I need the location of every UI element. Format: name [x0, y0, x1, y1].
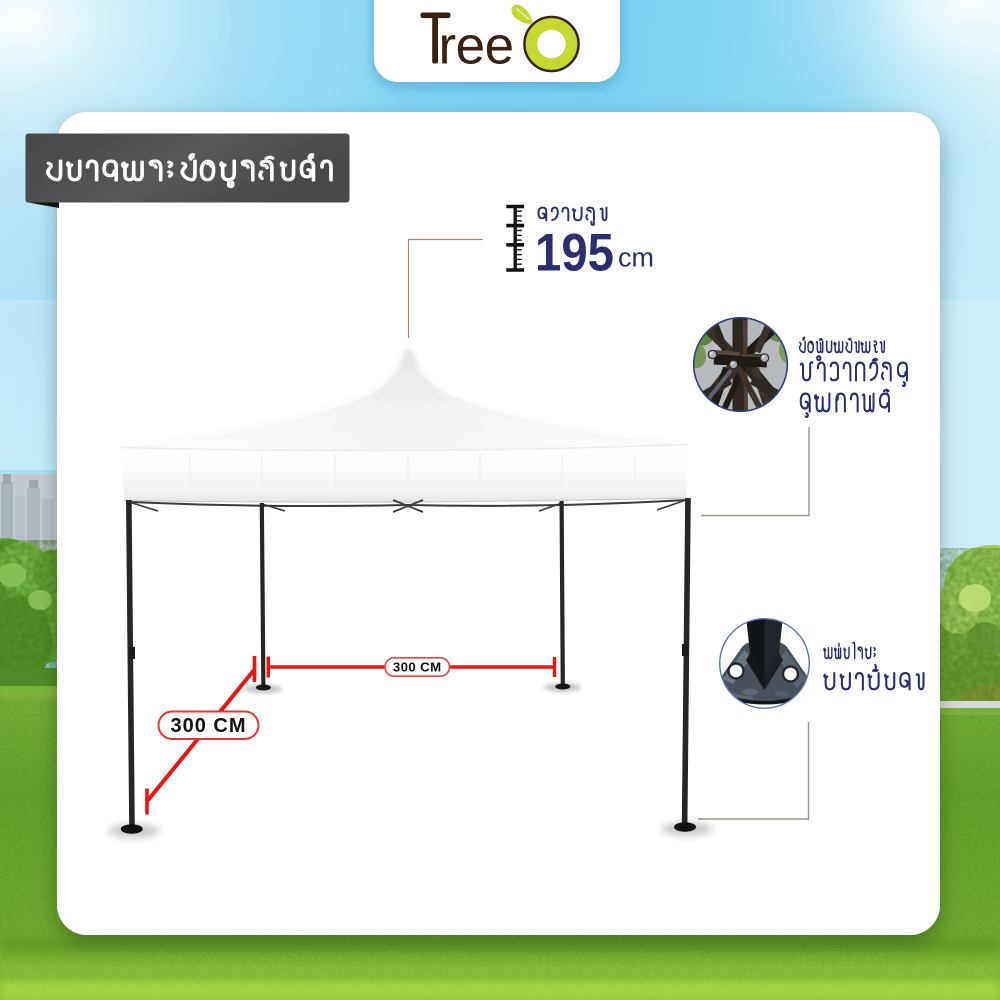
svg-text:195: 195	[535, 224, 614, 283]
svg-text:cm: cm	[618, 245, 654, 273]
svg-text:300 CM: 300 CM	[170, 715, 246, 737]
svg-text:300 CM: 300 CM	[393, 659, 442, 674]
svg-text:ree: ree	[439, 17, 514, 76]
